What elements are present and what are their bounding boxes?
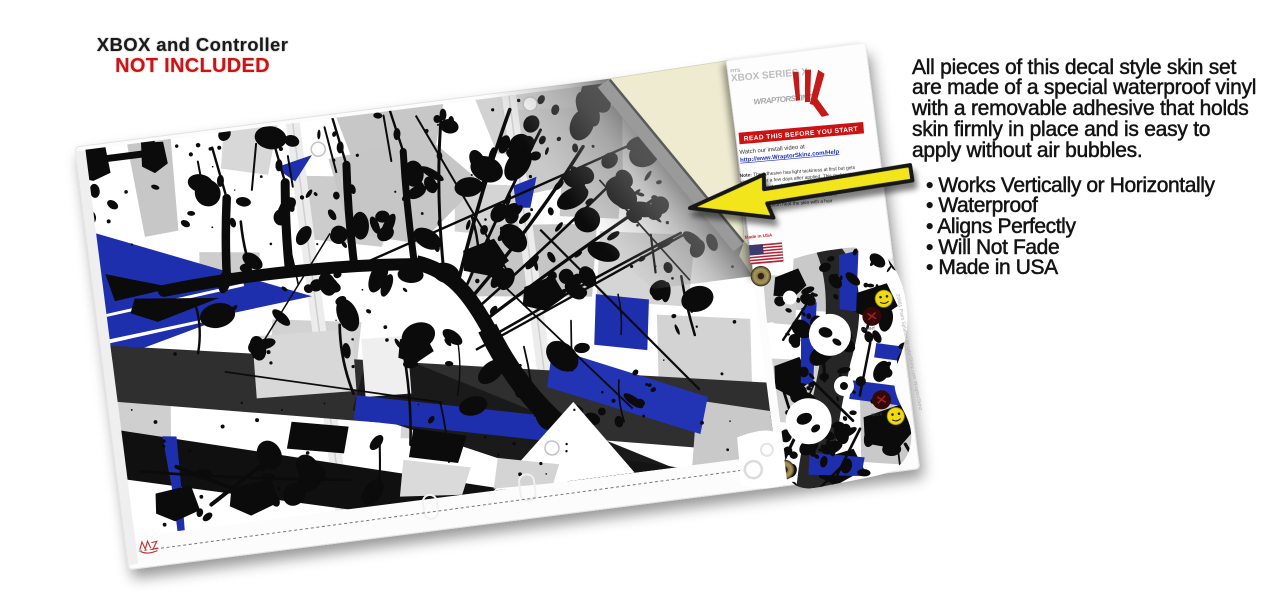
svg-text:BACK: BACK (871, 411, 883, 417)
